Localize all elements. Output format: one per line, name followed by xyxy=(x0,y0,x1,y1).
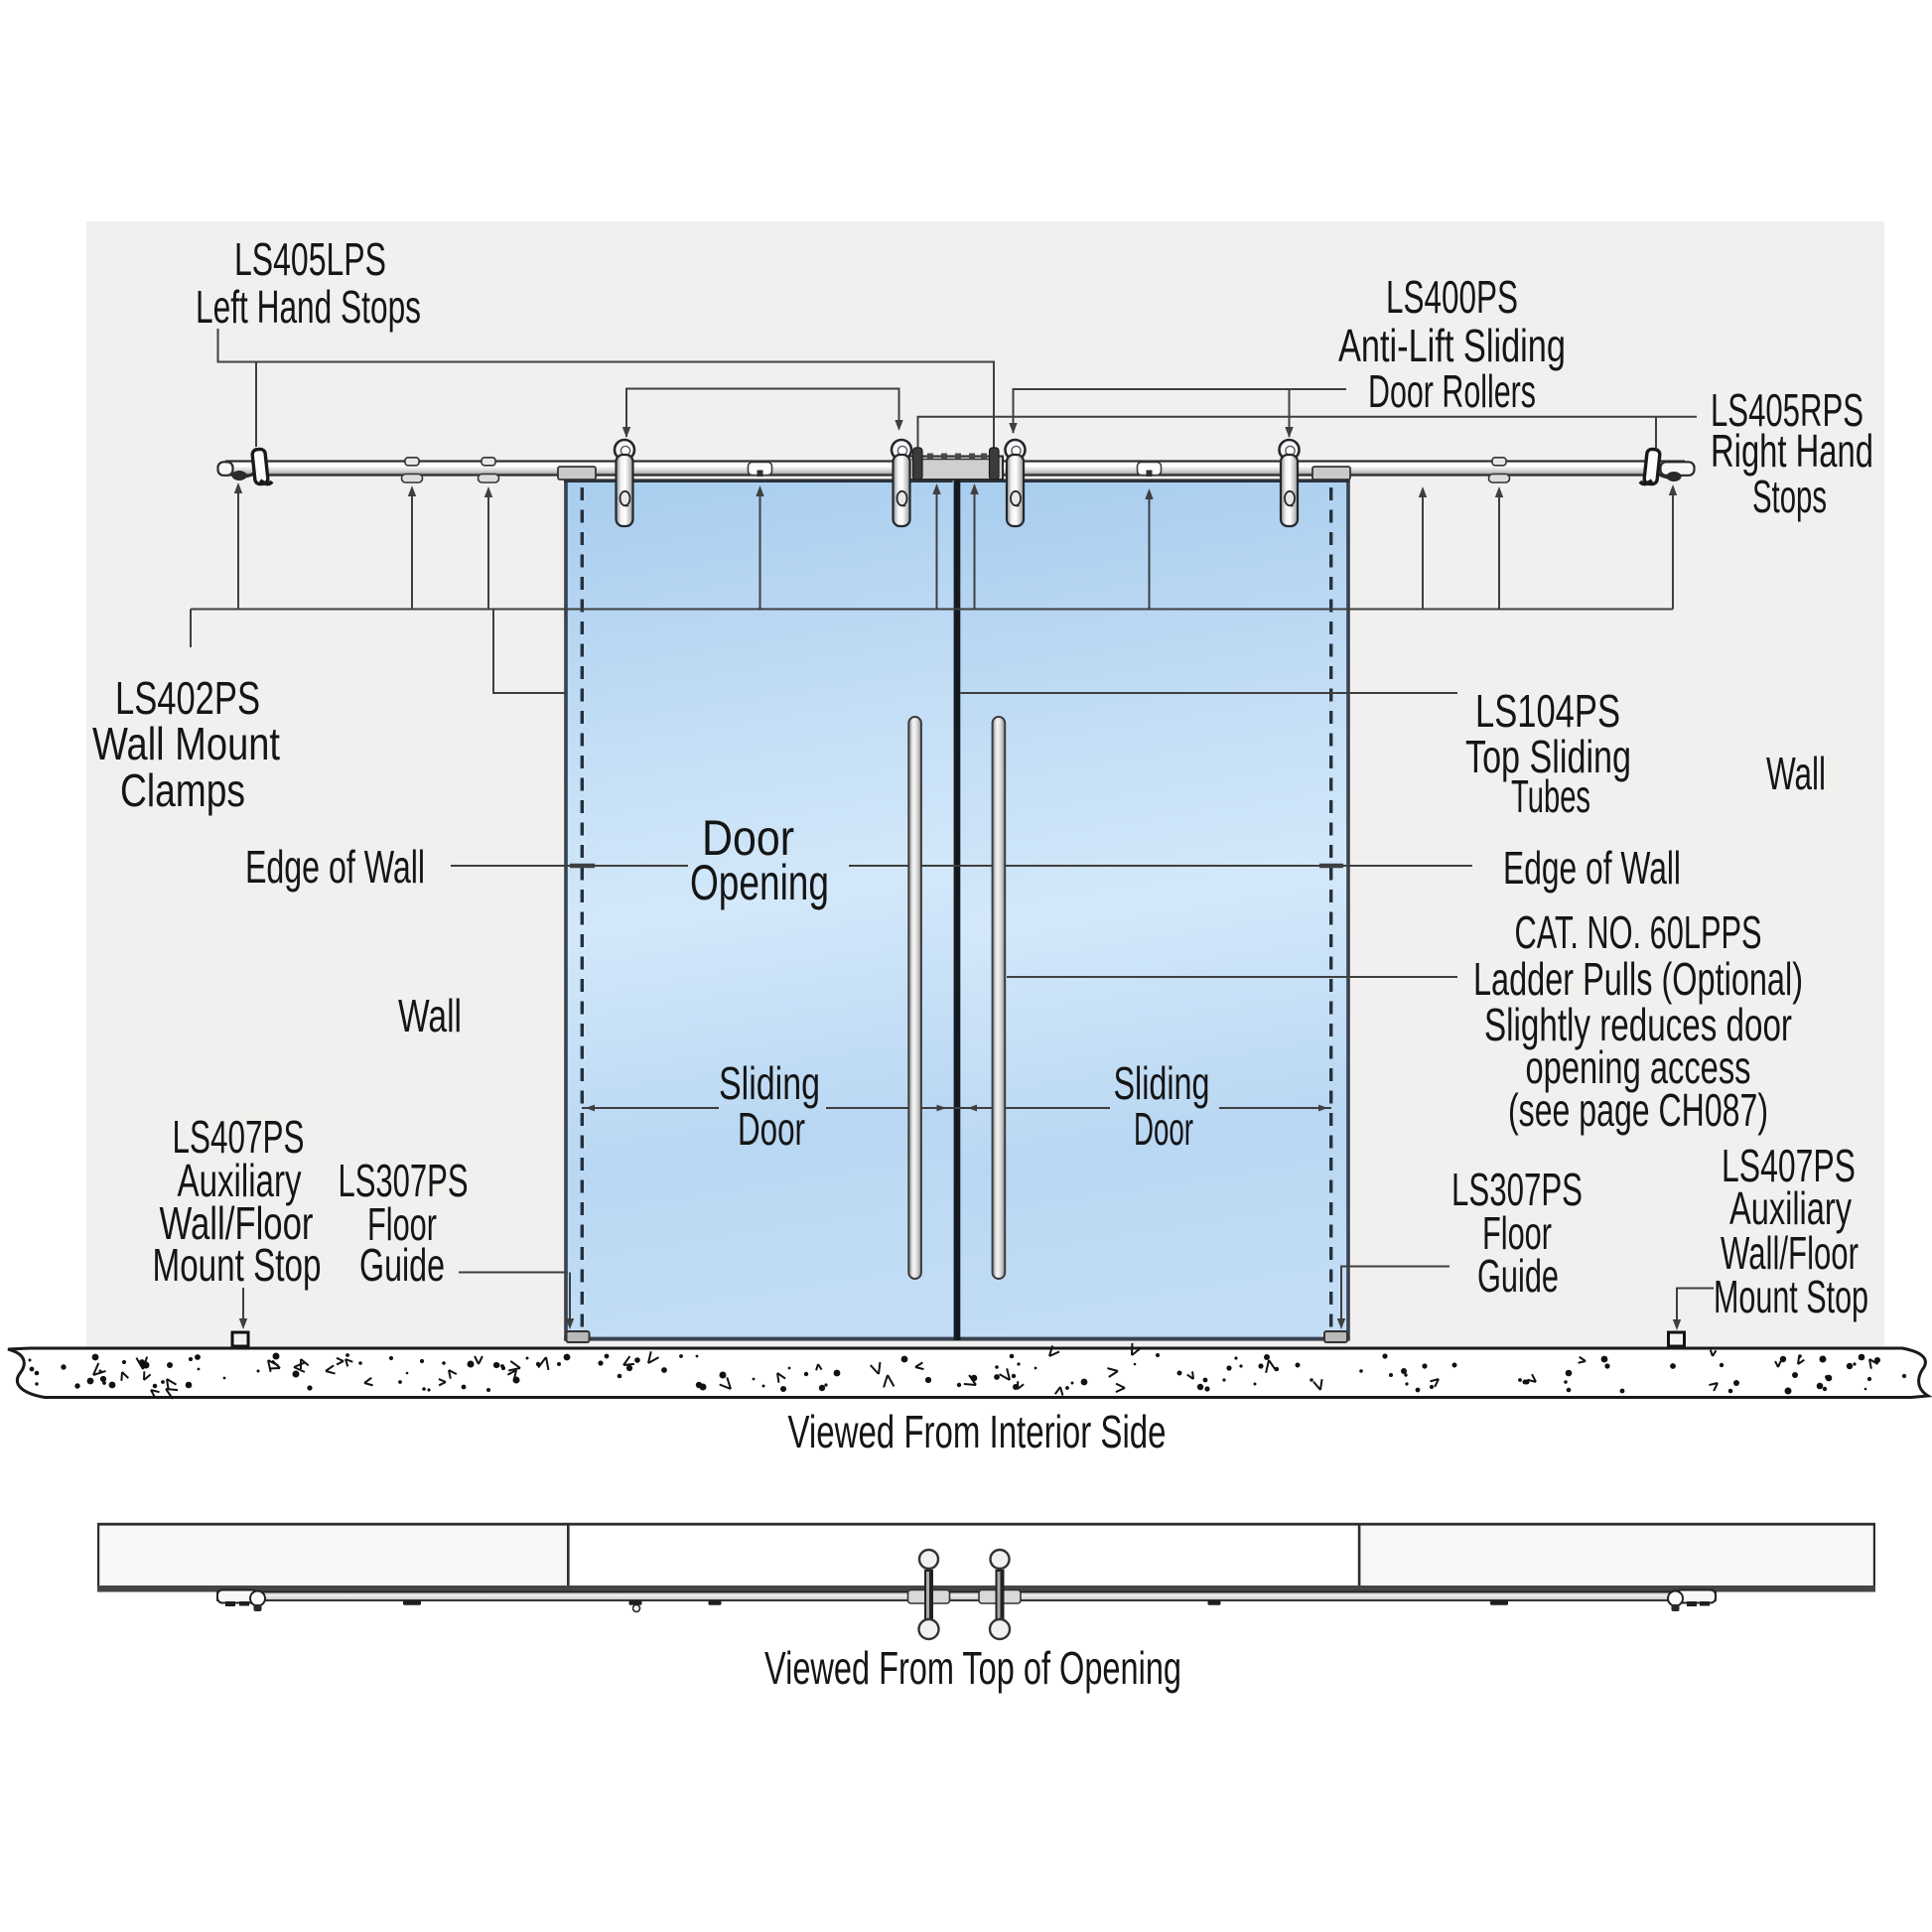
svg-text:Left Hand Stops: Left Hand Stops xyxy=(196,281,421,333)
svg-text:Tubes: Tubes xyxy=(1511,770,1590,822)
svg-text:LS405LPS: LS405LPS xyxy=(234,233,386,285)
svg-text:Sliding: Sliding xyxy=(719,1057,820,1109)
svg-text:Stops: Stops xyxy=(1752,471,1827,522)
svg-text:LS104PS: LS104PS xyxy=(1475,685,1620,737)
svg-text:Mount Stop: Mount Stop xyxy=(1714,1271,1868,1322)
svg-text:Wall Mount: Wall Mount xyxy=(92,718,280,769)
svg-text:(see page CH087): (see page CH087) xyxy=(1508,1084,1768,1136)
svg-text:Anti-Lift Sliding: Anti-Lift Sliding xyxy=(1338,320,1566,371)
svg-text:Edge of Wall: Edge of Wall xyxy=(1503,842,1681,894)
svg-text:Door: Door xyxy=(1134,1103,1193,1155)
svg-text:Viewed From Interior Side: Viewed From Interior Side xyxy=(788,1406,1167,1457)
svg-text:Ladder Pulls (Optional): Ladder Pulls (Optional) xyxy=(1473,953,1803,1005)
svg-text:Mount Stop: Mount Stop xyxy=(153,1239,322,1291)
svg-text:LS402PS: LS402PS xyxy=(115,672,260,724)
svg-text:Guide: Guide xyxy=(359,1239,445,1291)
svg-text:Wall: Wall xyxy=(1766,748,1826,799)
svg-text:Opening: Opening xyxy=(690,855,829,910)
svg-text:Guide: Guide xyxy=(1477,1250,1559,1302)
svg-text:Door: Door xyxy=(738,1103,805,1155)
svg-text:Edge of Wall: Edge of Wall xyxy=(245,841,425,893)
svg-text:Right Hand: Right Hand xyxy=(1711,425,1873,477)
svg-text:Door Rollers: Door Rollers xyxy=(1368,365,1536,417)
svg-text:Sliding: Sliding xyxy=(1114,1057,1210,1109)
svg-text:CAT. NO. 60LPPS: CAT. NO. 60LPPS xyxy=(1515,906,1762,958)
svg-text:LS400PS: LS400PS xyxy=(1386,271,1518,323)
svg-text:Wall: Wall xyxy=(398,990,462,1041)
svg-text:Clamps: Clamps xyxy=(120,764,245,816)
svg-text:Viewed From Top of Opening: Viewed From Top of Opening xyxy=(764,1642,1181,1694)
